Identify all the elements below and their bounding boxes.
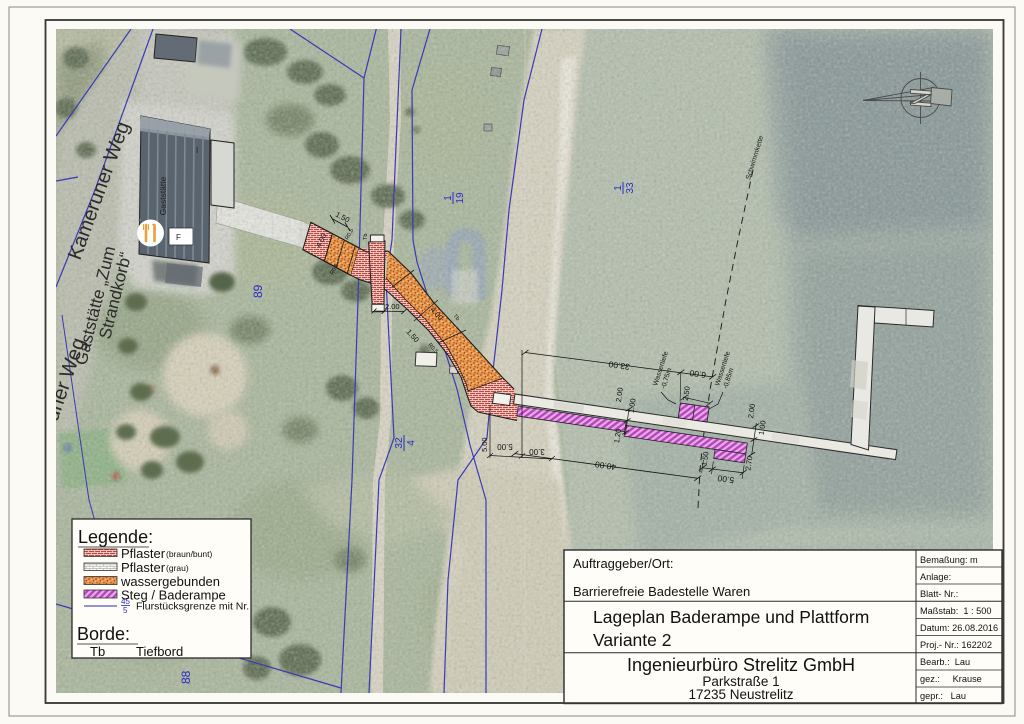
svg-text:Flurstücksgrenze mit Nr.: Flurstücksgrenze mit Nr.: [136, 601, 249, 613]
svg-text:32: 32: [394, 437, 405, 449]
svg-text:(braun/bunt): (braun/bunt): [166, 549, 212, 559]
svg-text:5.00: 5.00: [480, 437, 489, 452]
svg-text:Legende:: Legende:: [78, 527, 153, 547]
svg-text:88: 88: [179, 670, 193, 684]
svg-text:F: F: [176, 233, 181, 242]
svg-text:Datum: 26.08.2016: Datum: 26.08.2016: [920, 623, 998, 633]
svg-text:I: I: [196, 146, 198, 155]
svg-text:2.00: 2.00: [385, 302, 400, 311]
svg-text:1: 1: [613, 185, 624, 191]
svg-text:Tiefbord: Tiefbord: [136, 644, 183, 659]
svg-text:Tb: Tb: [90, 644, 105, 659]
svg-text:Anlage:: Anlage:: [920, 572, 951, 582]
svg-text:4: 4: [406, 440, 417, 446]
svg-text:Proj.- Nr.: 162202: Proj.- Nr.: 162202: [920, 640, 992, 650]
svg-text:gez.: Krause: gez.: Krause: [920, 674, 982, 684]
svg-text:Blatt- Nr.:: Blatt- Nr.:: [920, 589, 958, 599]
svg-text:Bearb.: Lau: Bearb.: Lau: [920, 657, 970, 667]
svg-text:(grau): (grau): [166, 563, 189, 573]
svg-text:Barrierefreie Badestelle Waren: Barrierefreie Badestelle Waren: [573, 584, 750, 599]
svg-text:Tb: Tb: [363, 234, 369, 240]
svg-text:3.00: 3.00: [529, 447, 545, 456]
svg-text:5: 5: [123, 606, 128, 615]
svg-text:Pflaster: Pflaster: [121, 560, 166, 575]
svg-text:Pflaster: Pflaster: [121, 546, 166, 561]
svg-text:Lageplan Baderampe und Plattfo: Lageplan Baderampe und Plattform: [593, 607, 869, 627]
svg-text:1: 1: [443, 195, 454, 201]
svg-text:Bemaßung: m: Bemaßung: m: [920, 555, 978, 565]
svg-text:Borde:: Borde:: [77, 624, 130, 644]
svg-text:33: 33: [625, 182, 636, 194]
svg-text:Ingenieurbüro Strelitz GmbH: Ingenieurbüro Strelitz GmbH: [627, 655, 855, 675]
svg-text:Gaststätte: Gaststätte: [158, 176, 168, 215]
svg-text:Maßstab: 1 : 500: Maßstab: 1 : 500: [920, 606, 992, 616]
svg-text:Auftraggeber/Ort:: Auftraggeber/Ort:: [573, 556, 673, 571]
svg-text:89: 89: [251, 284, 265, 298]
svg-text:gepr.: Lau: gepr.: Lau: [920, 691, 966, 701]
svg-text:Variante 2: Variante 2: [593, 630, 671, 650]
svg-text:17235 Neustrelitz: 17235 Neustrelitz: [688, 687, 793, 702]
svg-text:5.00: 5.00: [497, 442, 513, 451]
svg-text:19: 19: [455, 192, 466, 204]
